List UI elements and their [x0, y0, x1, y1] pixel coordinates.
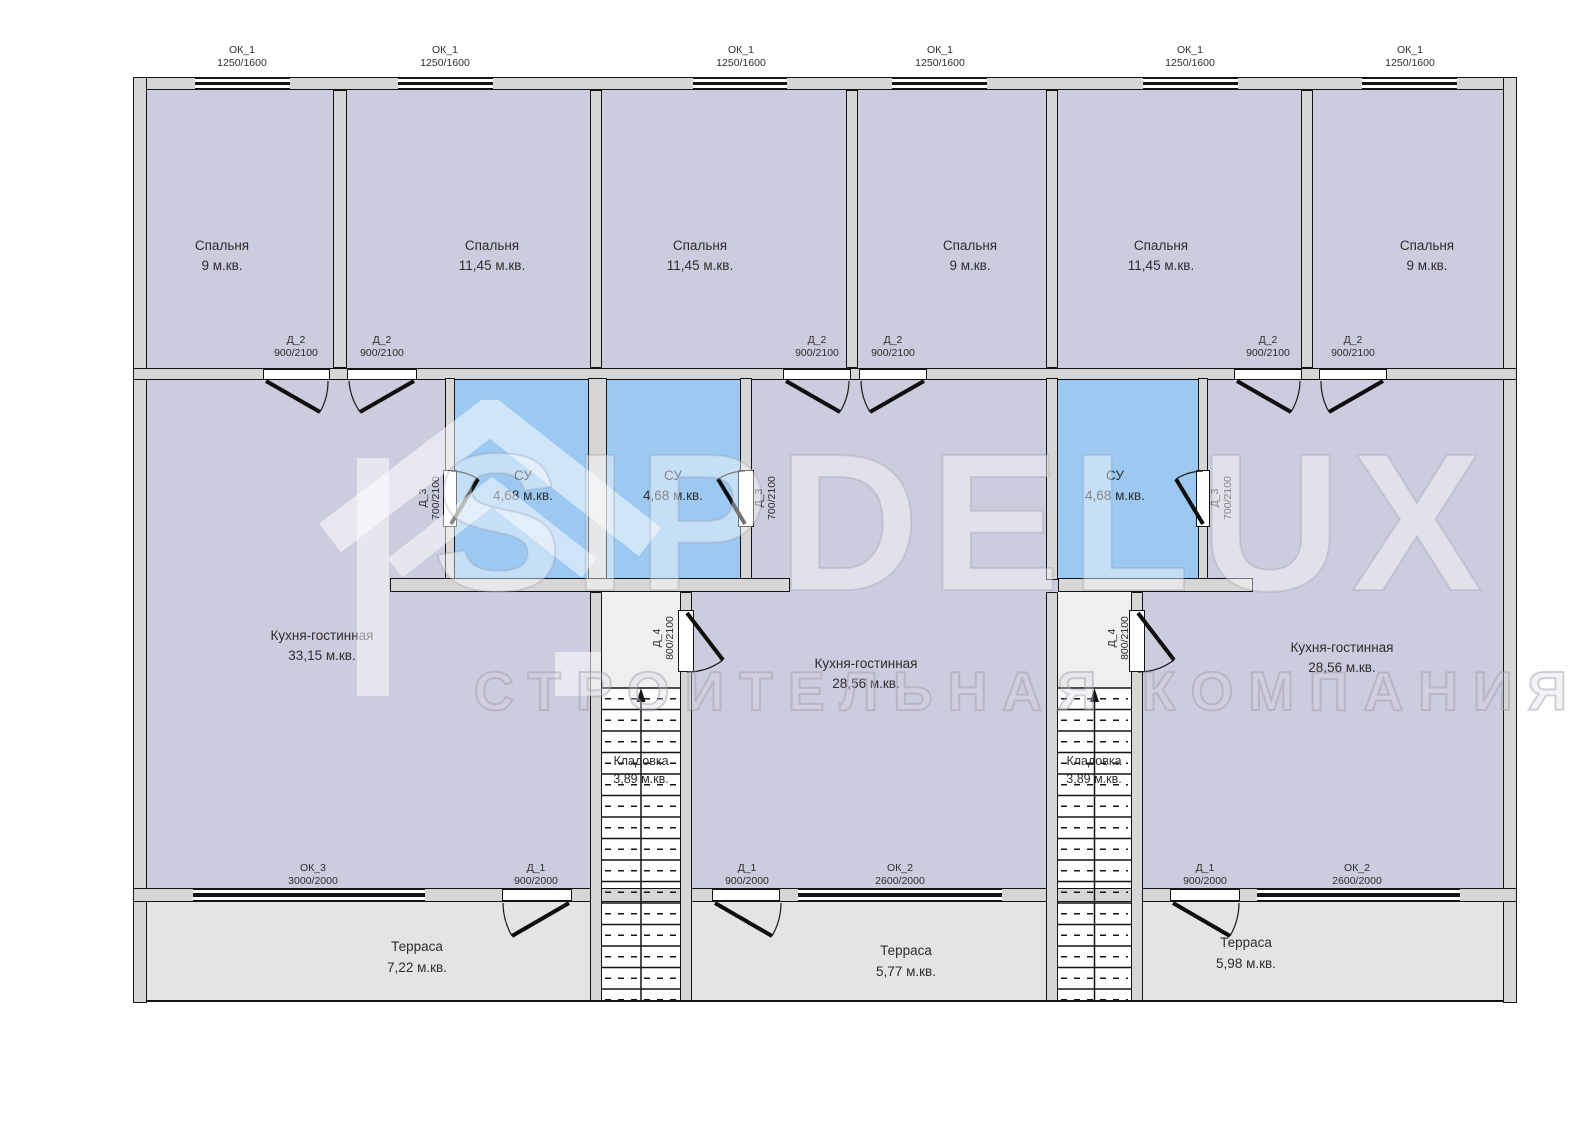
- exterior-wall-top: [133, 77, 1517, 90]
- door-label: Д_2900/2100: [327, 334, 437, 360]
- bedroom-label: Спальня11,45 м.кв.: [422, 236, 562, 276]
- door-label: Д_1900/2000: [687, 862, 807, 888]
- window-label: ОК_11250/1600: [182, 44, 302, 70]
- interior-area: [147, 90, 1503, 888]
- window-ok1: [892, 78, 987, 89]
- window-label: ОК_11250/1600: [681, 44, 801, 70]
- door-d2-opening: [347, 369, 417, 380]
- door-d3-opening: [1196, 470, 1210, 527]
- party-wall: [590, 90, 602, 368]
- stair-wall: [590, 592, 602, 1001]
- window-ok1: [1143, 78, 1238, 89]
- window-label: ОК_33000/2000: [253, 862, 373, 888]
- wall-bedroom-divider: [333, 90, 347, 368]
- door-label: Д_3700/2100: [1209, 462, 1235, 534]
- floor-plan: ОК_11250/1600 ОК_11250/1600 ОК_11250/160…: [0, 0, 1594, 1126]
- party-wall: [588, 378, 607, 580]
- door-d2-opening: [1319, 369, 1387, 380]
- window-label: ОК_22600/2000: [1297, 862, 1417, 888]
- terrace-edge-line: [147, 1000, 1503, 1002]
- door-label: Д_3700/2100: [417, 462, 443, 534]
- stair-wall: [1046, 592, 1058, 1001]
- window-label: ОК_11250/1600: [1350, 44, 1470, 70]
- door-label: Д_2900/2100: [838, 334, 948, 360]
- window-ok2: [1257, 889, 1460, 901]
- wall-bathroom-shelf: [390, 578, 790, 592]
- terrace-label: Терраса5,98 м.кв.: [1176, 932, 1316, 974]
- wall-bedroom-divider: [846, 90, 858, 368]
- window-ok1: [1362, 78, 1457, 89]
- party-wall: [1046, 90, 1058, 368]
- window-label: ОК_11250/1600: [385, 44, 505, 70]
- door-d3-opening: [738, 470, 754, 527]
- terrace-label: Терраса7,22 м.кв.: [347, 936, 487, 978]
- kitchen-label: Кухня-гостинная28,56 м.кв.: [786, 654, 946, 694]
- bedroom-label: Спальня9 м.кв.: [1357, 236, 1497, 276]
- bedroom-label: Спальня11,45 м.кв.: [630, 236, 770, 276]
- door-d2-opening: [263, 369, 330, 380]
- window-ok2: [798, 889, 1002, 901]
- bedroom-label: Спальня11,45 м.кв.: [1091, 236, 1231, 276]
- door-d1-opening: [1170, 889, 1240, 901]
- window-ok1: [195, 78, 290, 89]
- bathroom-label: СУ4,68 м.кв.: [463, 466, 583, 506]
- bedroom-label: Спальня9 м.кв.: [152, 236, 292, 276]
- door-d2-opening: [783, 369, 851, 380]
- door-d2-opening: [1234, 369, 1302, 380]
- window-ok1: [693, 78, 787, 89]
- wall-bedroom-divider: [1301, 90, 1313, 368]
- door-d4-opening: [678, 610, 694, 672]
- window-ok3: [193, 889, 425, 901]
- kitchen-label: Кухня-гостинная33,15 м.кв.: [242, 626, 402, 666]
- terrace-label: Терраса5,77 м.кв.: [836, 940, 976, 982]
- door-d1-opening: [502, 889, 572, 901]
- storage-label: Кладовка3,89 м.кв.: [601, 752, 681, 788]
- kitchen-label: Кухня-гостинная28,56 м.кв.: [1262, 638, 1422, 678]
- bathroom-label: СУ4,68 м.кв.: [1055, 466, 1175, 506]
- window-label: ОК_22600/2000: [840, 862, 960, 888]
- exterior-wall-right: [1503, 77, 1517, 1003]
- door-label: Д_1900/2000: [1145, 862, 1265, 888]
- door-label: Д_1900/2000: [476, 862, 596, 888]
- bathroom-label: СУ4,68 м.кв.: [613, 466, 733, 506]
- exterior-wall-left: [133, 77, 147, 1003]
- window-ok1: [398, 78, 493, 89]
- door-d1-opening: [712, 889, 780, 901]
- door-d3-opening: [443, 470, 457, 527]
- door-label: Д_3700/2100: [753, 462, 779, 534]
- door-label: Д_2900/2100: [1298, 334, 1408, 360]
- window-label: ОК_11250/1600: [1130, 44, 1250, 70]
- door-label: Д_4800/2100: [1106, 602, 1132, 674]
- wall-bathroom-shelf: [1058, 578, 1253, 592]
- window-label: ОК_11250/1600: [880, 44, 1000, 70]
- storage-label: Кладовка3,89 м.кв.: [1054, 752, 1134, 788]
- door-label: Д_4800/2100: [651, 602, 677, 674]
- bedroom-label: Спальня9 м.кв.: [900, 236, 1040, 276]
- door-d2-opening: [859, 369, 927, 380]
